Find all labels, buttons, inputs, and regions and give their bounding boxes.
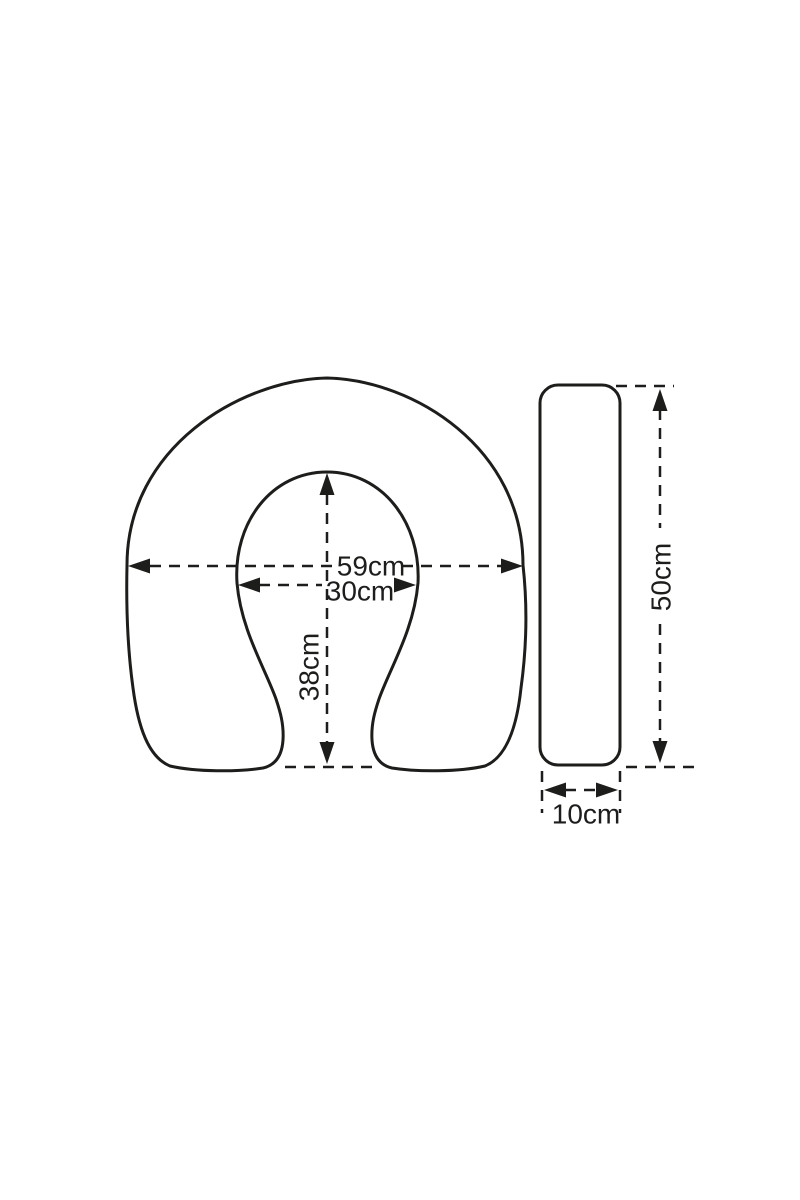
- inner-width-label: 30cm: [326, 576, 394, 607]
- side-height-label: 50cm: [646, 543, 677, 611]
- arrow-down-icon: [320, 742, 335, 764]
- inner-depth-label: 38cm: [294, 633, 325, 701]
- cushion-side-outline: [540, 385, 620, 765]
- arrow-up-icon: [653, 389, 668, 411]
- dimension-inner-depth: 38cm: [285, 473, 380, 767]
- arrow-left-icon: [238, 578, 260, 593]
- side-view-profile: [540, 385, 620, 765]
- cushion-dimension-diagram: 59cm 30cm 38cm 50cm: [0, 0, 800, 1200]
- dimension-side-height: 50cm: [616, 386, 700, 767]
- side-thickness-label: 10cm: [552, 799, 620, 830]
- dimension-side-thickness: 10cm: [542, 771, 620, 830]
- arrow-up-icon: [320, 473, 335, 495]
- arrow-right-icon: [596, 783, 618, 798]
- arrow-left-icon: [544, 783, 566, 798]
- arrow-down-icon: [653, 741, 668, 763]
- dimension-drawing-page: 59cm 30cm 38cm 50cm: [0, 0, 800, 1200]
